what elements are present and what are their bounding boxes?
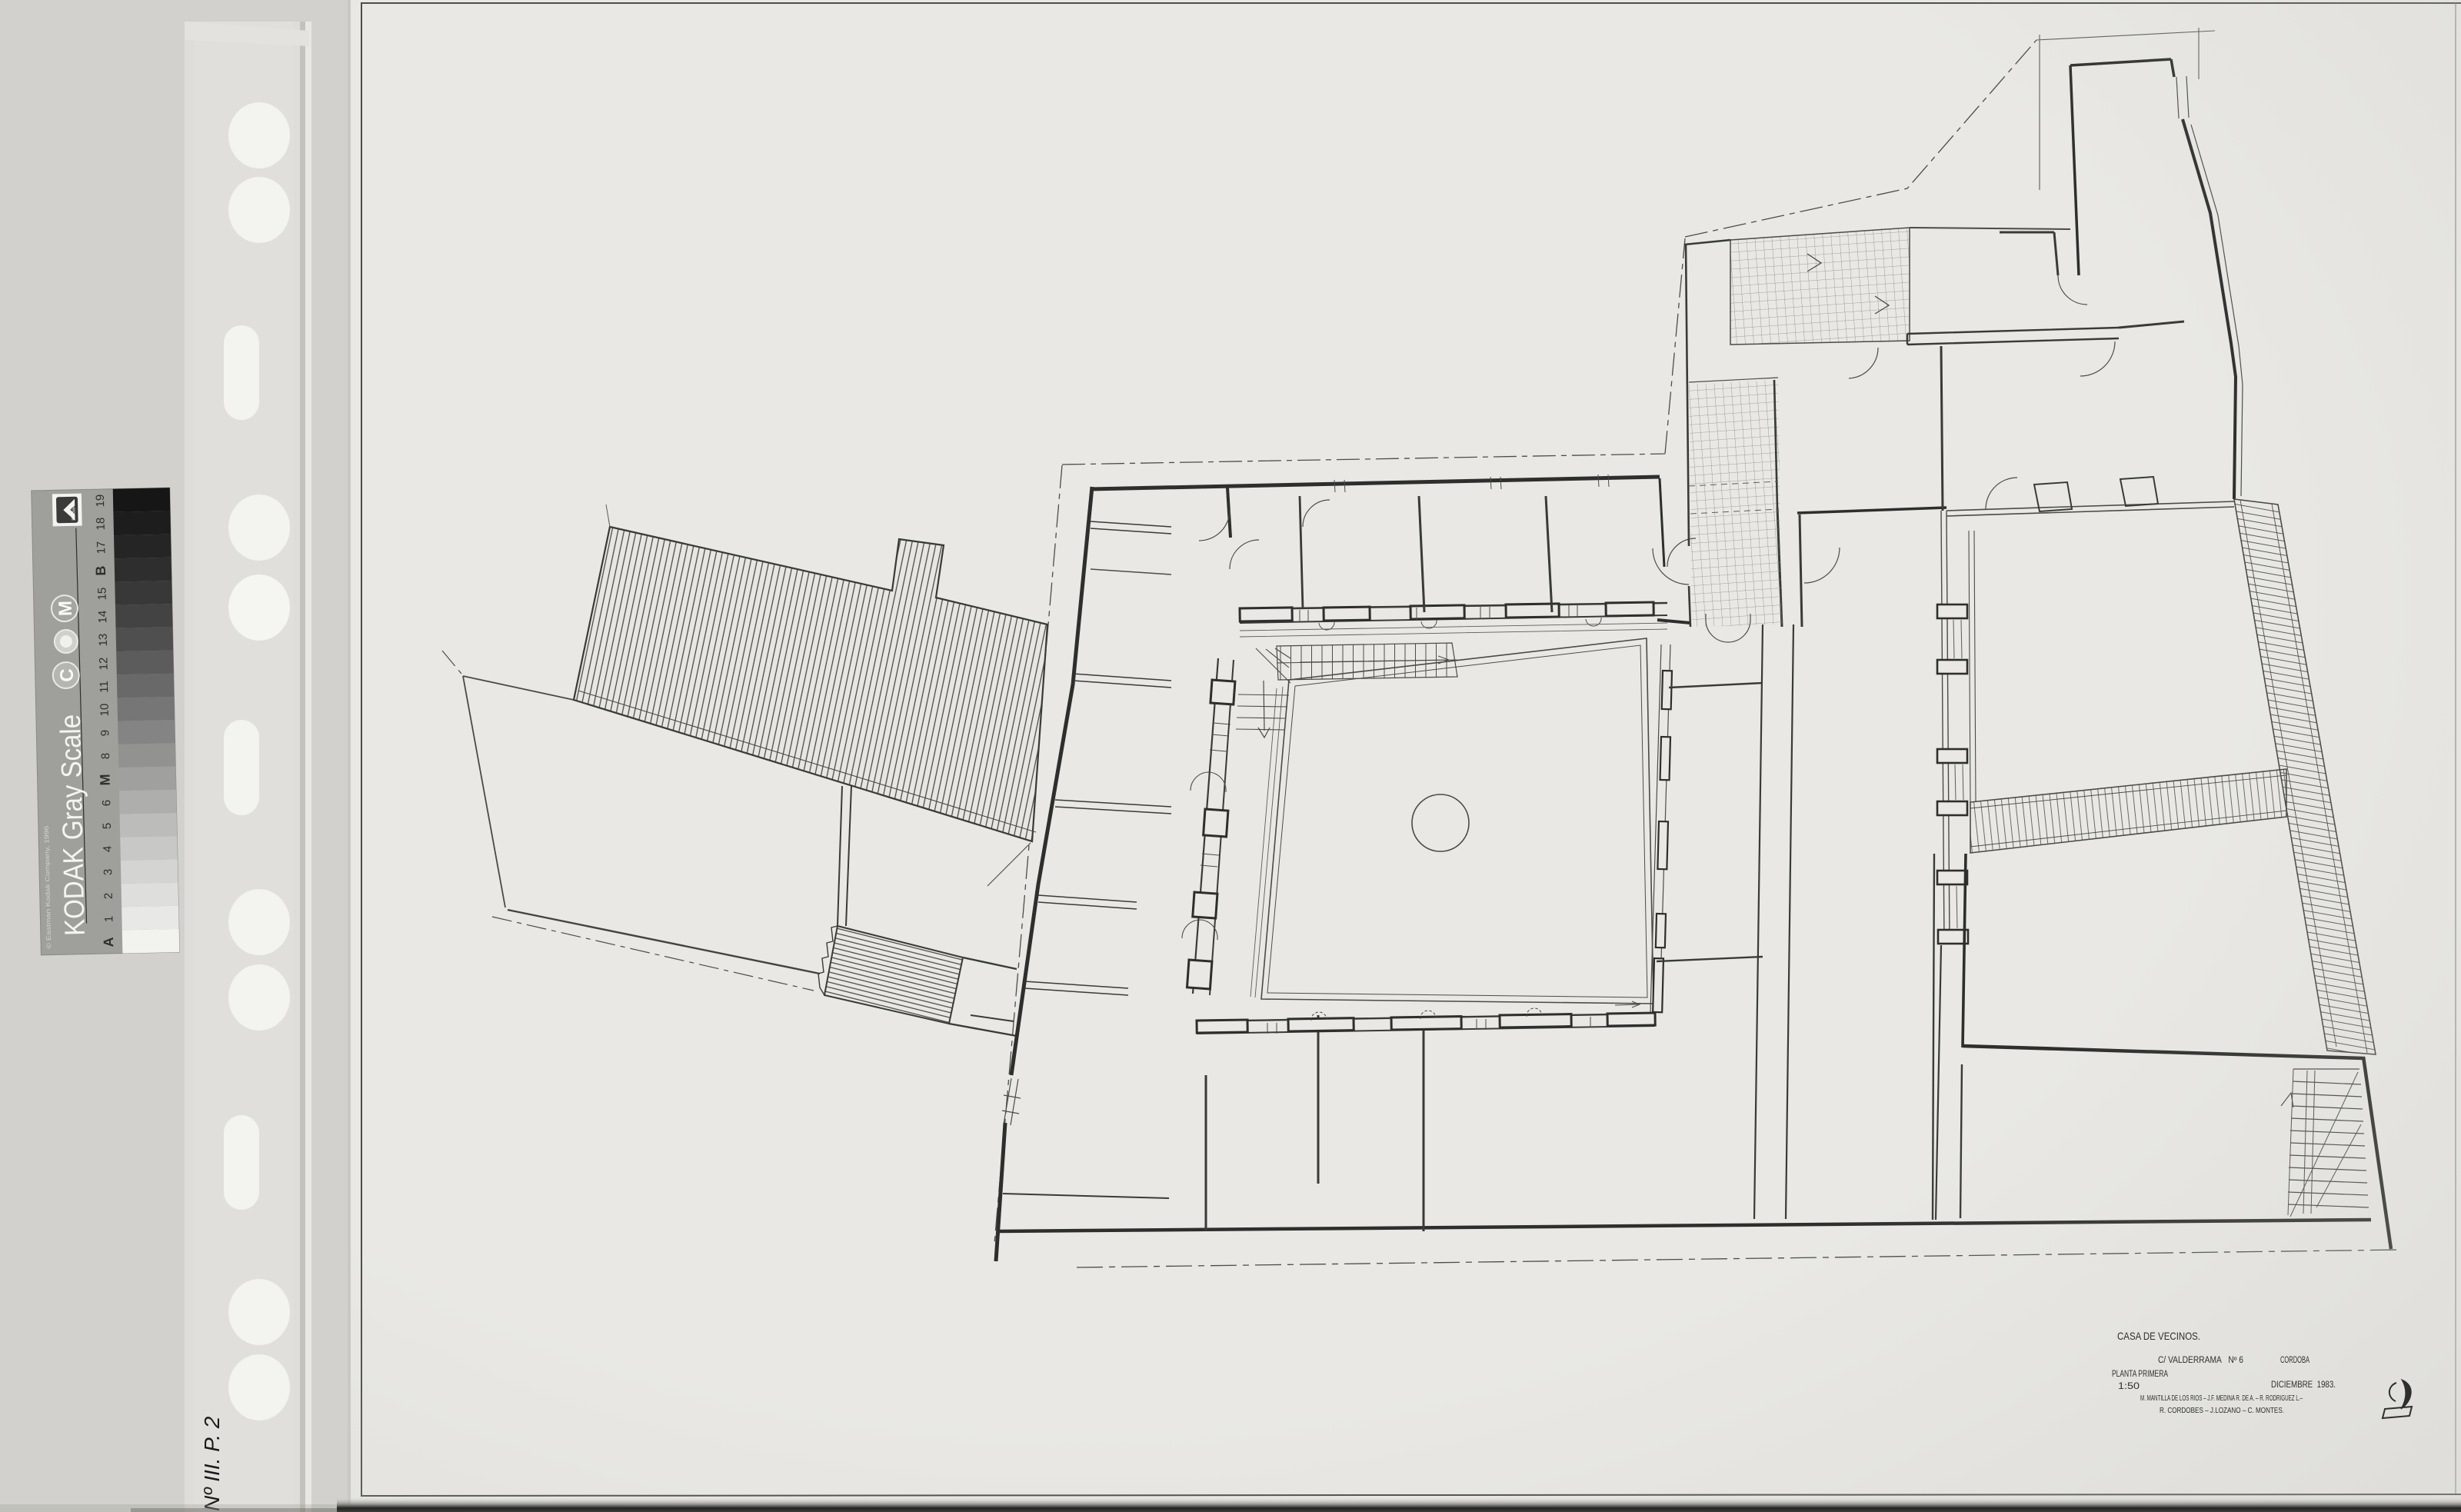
svg-text:R. CORDOBES – J.LOZANO – C. MO: R. CORDOBES – J.LOZANO – C. MONTES. [2160,1406,2284,1415]
svg-text:M: M [98,774,113,785]
svg-text:4: 4 [101,846,114,853]
svg-text:CORDOBA: CORDOBA [2280,1356,2309,1365]
svg-text:15: 15 [95,588,108,601]
svg-text:18: 18 [95,518,108,531]
svg-text:Nº III. P. 2: Nº III. P. 2 [200,1416,224,1511]
svg-text:9: 9 [98,730,112,737]
svg-text:CASA DE VECINOS.: CASA DE VECINOS. [2117,1330,2200,1342]
svg-text:12: 12 [97,658,110,671]
svg-text:10: 10 [98,703,112,716]
svg-text:PLANTA PRIMERA: PLANTA PRIMERA [2112,1370,2168,1379]
svg-text:1:50: 1:50 [2118,1382,2140,1391]
svg-text:13: 13 [97,634,110,647]
svg-text:Kodak: Kodak [71,505,76,520]
svg-text:8: 8 [99,753,112,760]
svg-text:B: B [93,565,108,575]
svg-text:19: 19 [94,495,107,508]
svg-text:DICIEMBRE 1983.: DICIEMBRE 1983. [2271,1380,2336,1390]
svg-text:2: 2 [102,893,115,900]
svg-text:M. MANTILLA DE LOS RIOS – J.F.: M. MANTILLA DE LOS RIOS – J.F. MEDINA R.… [2140,1394,2303,1403]
svg-text:A: A [101,937,116,947]
svg-text:17: 17 [95,541,108,555]
svg-text:14: 14 [96,611,109,624]
svg-text:KODAK Gray Scale: KODAK Gray Scale [55,714,91,937]
svg-text:5: 5 [101,823,114,830]
svg-text:C: C [57,668,78,682]
svg-text:1: 1 [102,916,115,923]
svg-text:C/ VALDERRAMA Nº 6: C/ VALDERRAMA Nº 6 [2158,1356,2243,1365]
svg-text:11: 11 [98,681,111,693]
svg-text:M: M [55,601,76,617]
svg-text:3: 3 [102,869,115,876]
svg-text:6: 6 [100,800,113,807]
